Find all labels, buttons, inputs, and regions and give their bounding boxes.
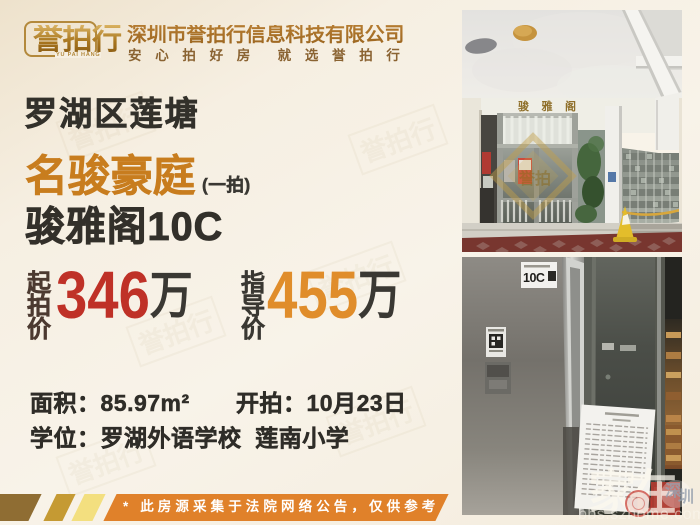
svg-text:誉拍: 誉拍 [518, 169, 551, 188]
svg-text:10C: 10C [523, 271, 545, 285]
svg-text:骏雅阁: 骏雅阁 [518, 99, 589, 113]
